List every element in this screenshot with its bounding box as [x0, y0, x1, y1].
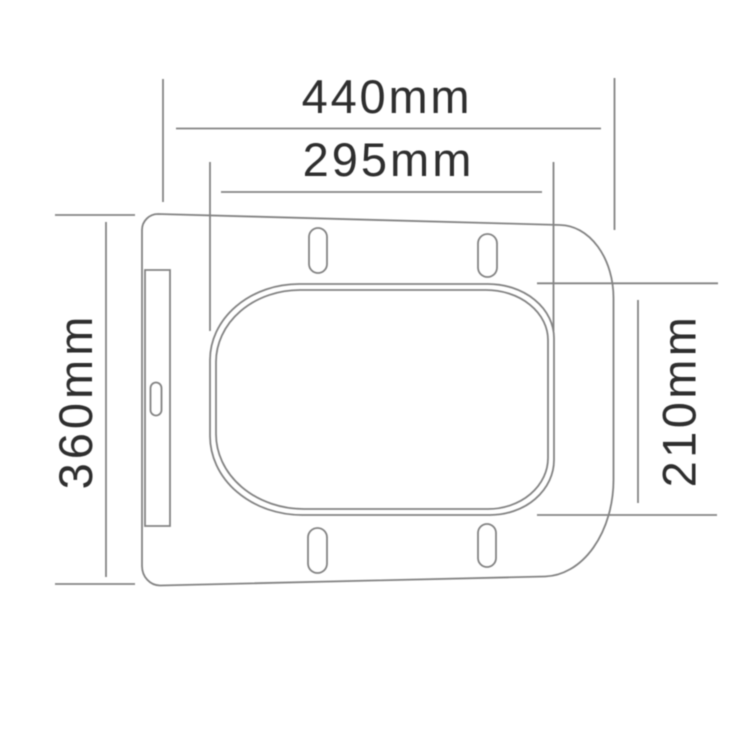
svg-text:295mm: 295mm: [303, 133, 475, 186]
svg-text:210mm: 210mm: [653, 314, 706, 488]
svg-text:360mm: 360mm: [49, 313, 102, 490]
svg-text:440mm: 440mm: [302, 70, 473, 123]
